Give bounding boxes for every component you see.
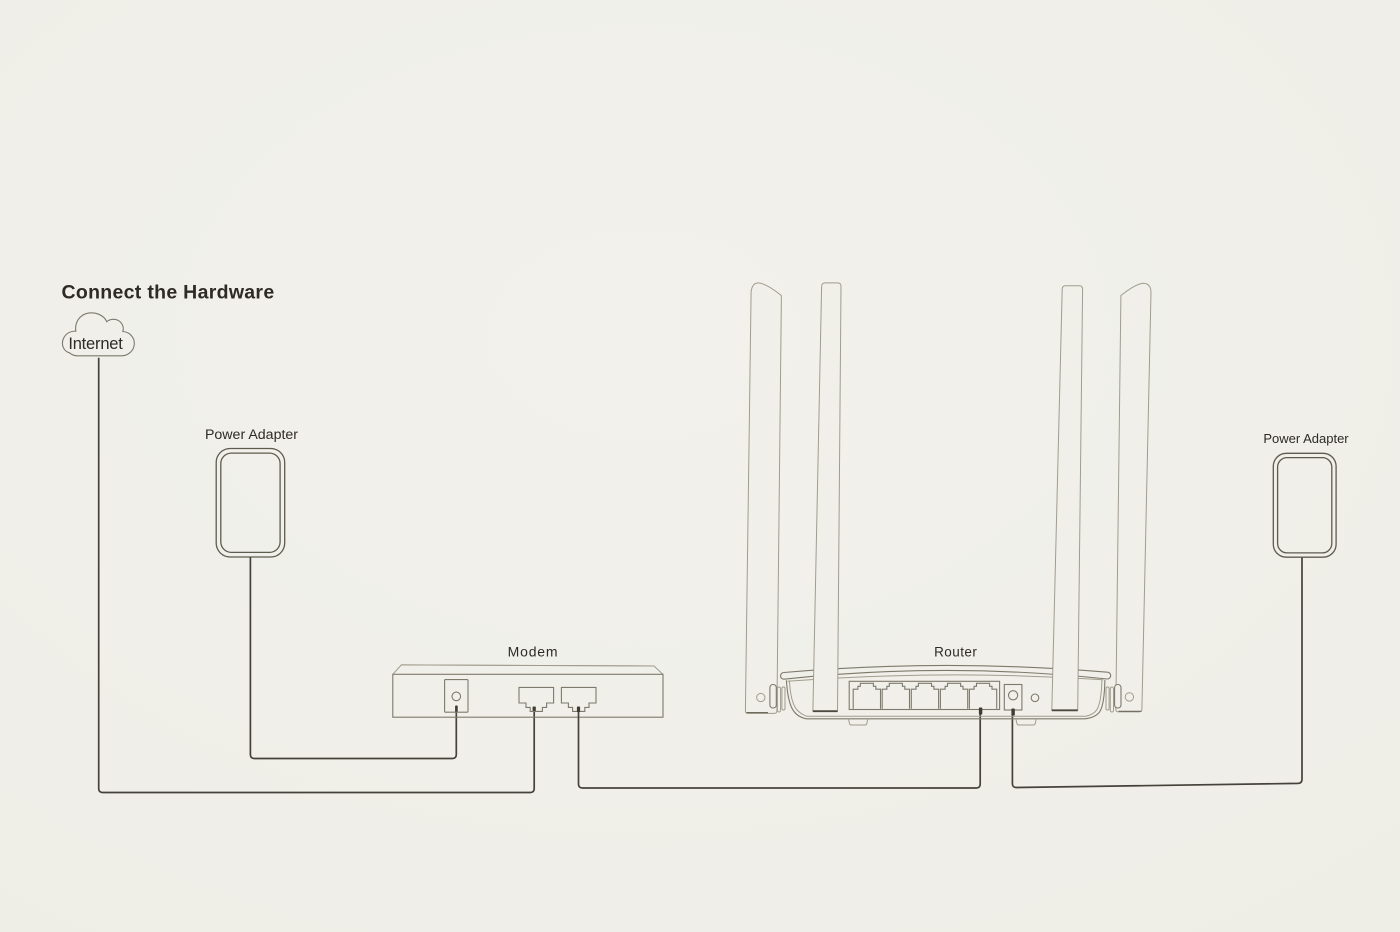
svg-text:Connect the Hardware: Connect the Hardware xyxy=(62,282,275,304)
svg-text:Power Adapter: Power Adapter xyxy=(205,427,298,443)
svg-text:Modem: Modem xyxy=(508,644,559,660)
svg-text:Internet: Internet xyxy=(68,335,123,353)
svg-text:Power Adapter: Power Adapter xyxy=(1263,431,1349,446)
svg-text:Router: Router xyxy=(934,645,977,660)
